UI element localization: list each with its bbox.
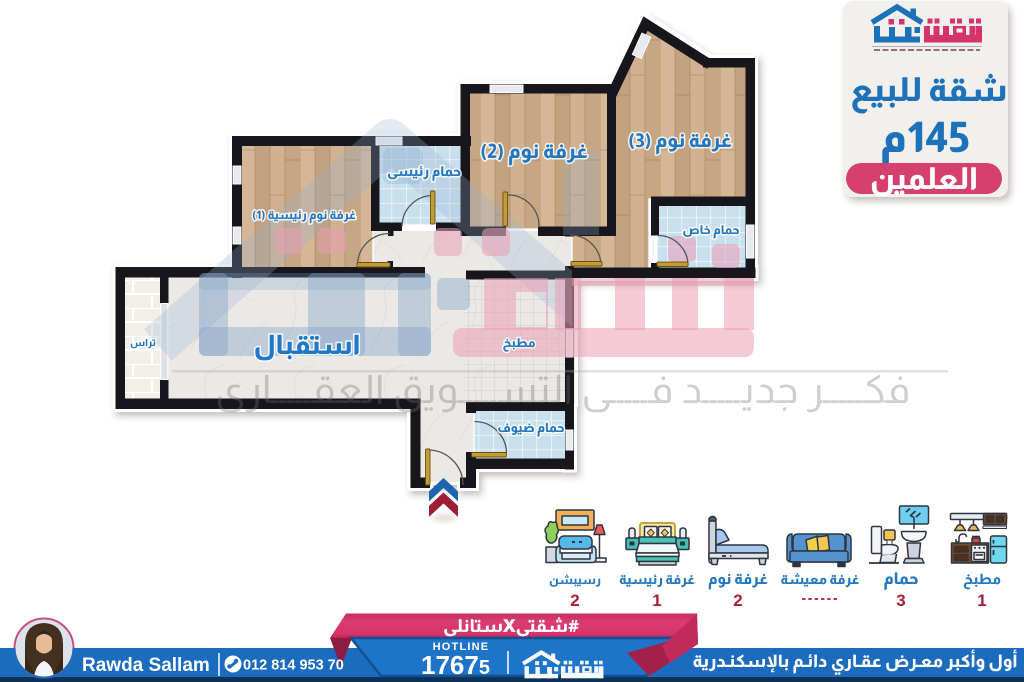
svg-text:012 814 953 70: 012 814 953 70: [243, 658, 344, 674]
svg-text:1: 1: [977, 591, 986, 610]
svg-text:3: 3: [896, 591, 905, 610]
svg-text:1: 1: [652, 591, 661, 610]
svg-text:Rawda Sallam: Rawda Sallam: [82, 655, 210, 676]
svg-text:2: 2: [733, 591, 742, 610]
svg-text:2: 2: [570, 591, 579, 610]
